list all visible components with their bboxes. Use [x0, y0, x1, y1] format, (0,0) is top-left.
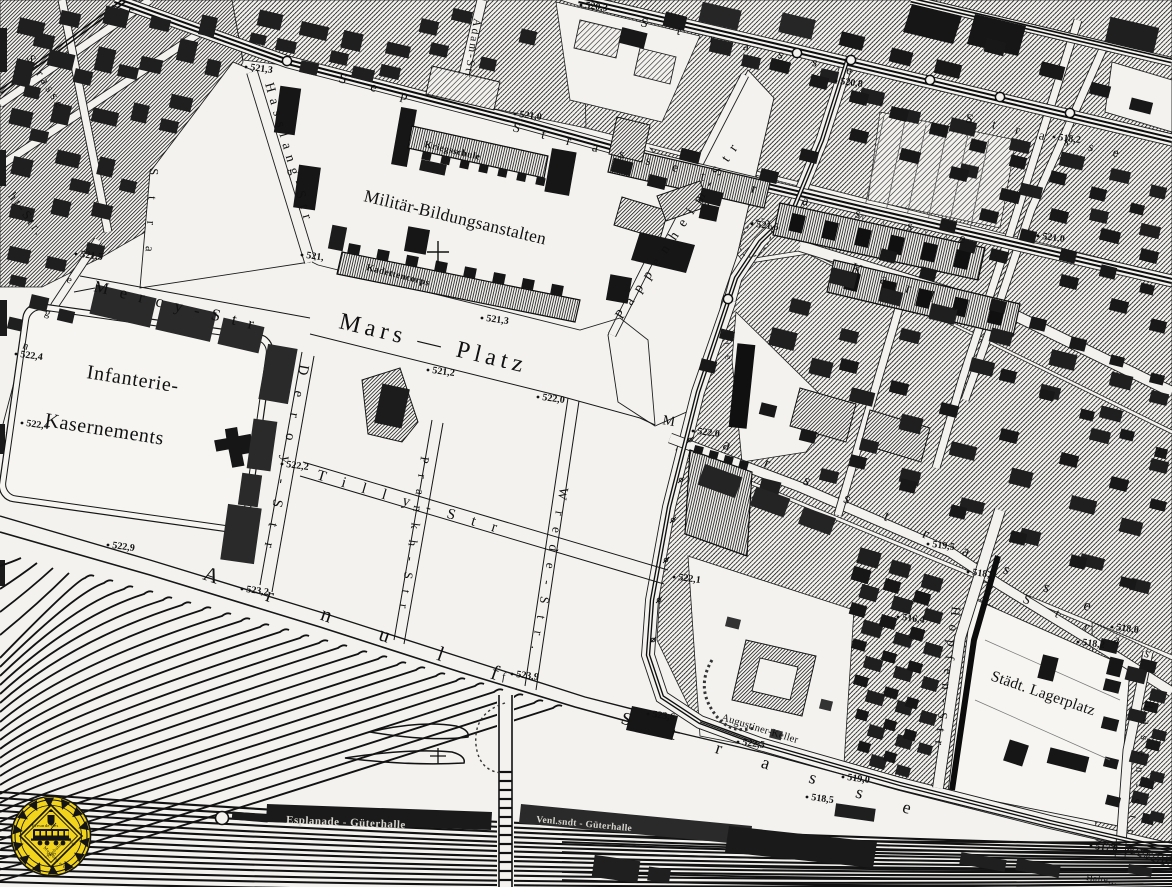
svg-text:18 97: 18 97: [46, 852, 57, 857]
svg-text:Freunde des: Freunde des: [32, 823, 59, 828]
